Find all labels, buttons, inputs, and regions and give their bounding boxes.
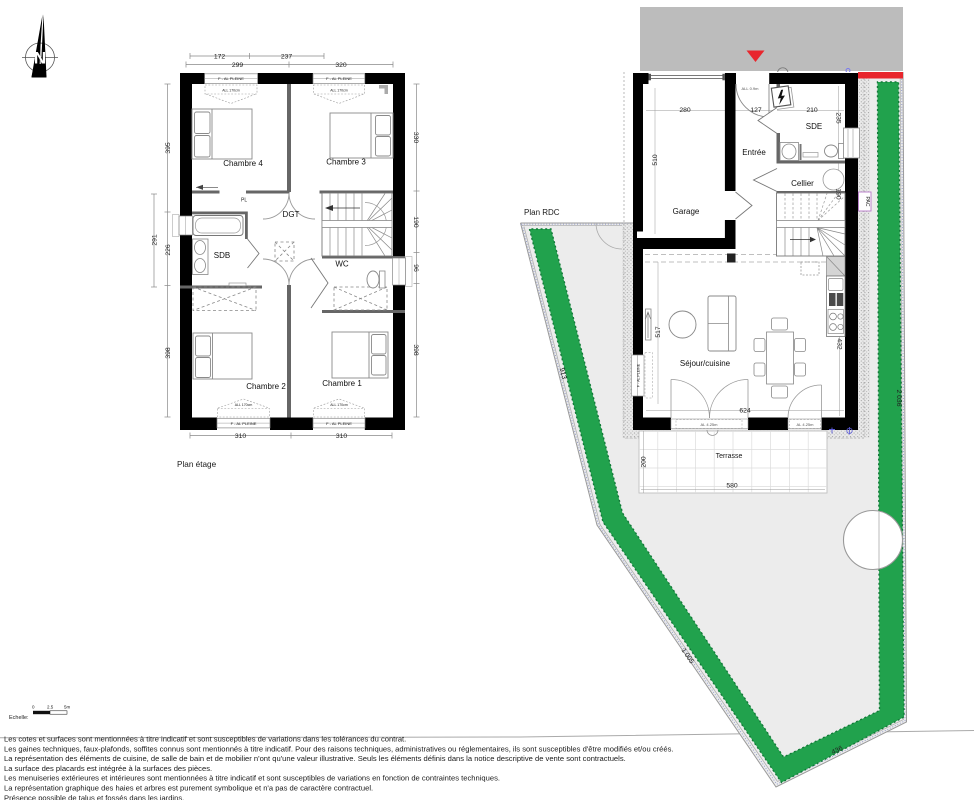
svg-text:2.5: 2.5 [47, 705, 54, 710]
svg-text:2 036: 2 036 [895, 389, 902, 406]
svg-text:N: N [34, 49, 46, 68]
svg-text:Plan RDC: Plan RDC [524, 208, 560, 217]
svg-text:AL 4.25m: AL 4.25m [701, 422, 719, 427]
svg-text:398: 398 [412, 344, 419, 356]
svg-text:280: 280 [679, 107, 691, 114]
svg-text:226: 226 [165, 244, 172, 256]
svg-text:127: 127 [750, 107, 762, 114]
svg-text:330: 330 [412, 132, 419, 144]
svg-text:Présence possible de talus et: Présence possible de talus et fossés dan… [4, 793, 184, 800]
svg-text:F - AL PLEINE: F - AL PLEINE [326, 76, 352, 81]
svg-text:310: 310 [336, 433, 348, 440]
svg-text:ALL 0.9m: ALL 0.9m [742, 86, 760, 91]
svg-text:172: 172 [214, 53, 226, 60]
svg-text:Chambre 1: Chambre 1 [322, 379, 362, 388]
svg-text:Entrée: Entrée [742, 148, 766, 157]
svg-text:La représentation des éléments: La représentation des éléments de cuisin… [4, 754, 626, 763]
svg-text:310: 310 [235, 433, 247, 440]
svg-text:580: 580 [726, 483, 738, 490]
svg-text:Les gaines techniques, faux-pl: Les gaines techniques, faux-plafonds, so… [4, 744, 674, 753]
svg-text:Terrasse: Terrasse [716, 453, 743, 460]
svg-text:F - AL PLEINE: F - AL PLEINE [231, 421, 257, 426]
svg-text:190: 190 [412, 216, 419, 228]
svg-text:190: 190 [834, 188, 841, 200]
svg-text:Plan étage: Plan étage [177, 460, 217, 469]
svg-text:ALL 170cm: ALL 170cm [330, 403, 348, 407]
svg-text:Séjour/cuisine: Séjour/cuisine [680, 359, 731, 368]
svg-text:Les menuiseries extérieures et: Les menuiseries extérieures et intérieur… [4, 774, 500, 783]
svg-text:Garage: Garage [673, 207, 700, 216]
svg-text:F - AL PLEINE: F - AL PLEINE [326, 421, 352, 426]
svg-text:F - AL PLEINE: F - AL PLEINE [218, 76, 244, 81]
svg-text:624: 624 [739, 408, 751, 415]
svg-text:96: 96 [412, 264, 419, 272]
svg-text:Echelle:: Echelle: [9, 715, 29, 721]
svg-text:PAC: PAC [864, 197, 870, 207]
svg-text:WC: WC [335, 260, 349, 269]
svg-text:235: 235 [834, 112, 841, 124]
svg-text:ALL 170cm: ALL 170cm [330, 89, 348, 93]
svg-text:432: 432 [835, 338, 842, 350]
svg-text:AL 4.25m: AL 4.25m [797, 422, 815, 427]
svg-text:320: 320 [335, 62, 347, 69]
svg-text:La représentation graphique de: La représentation graphique des haies et… [4, 784, 373, 793]
svg-text:Chambre 4: Chambre 4 [223, 159, 263, 168]
svg-text:Chambre 2: Chambre 2 [246, 382, 286, 391]
svg-text:Cellier: Cellier [791, 179, 814, 188]
svg-text:La surface des placards est in: La surface des placards est intégrée à l… [4, 764, 212, 773]
svg-text:210: 210 [806, 107, 818, 114]
svg-text:291: 291 [151, 234, 158, 246]
svg-text:395: 395 [165, 142, 172, 154]
svg-text:ALL 170cm: ALL 170cm [235, 403, 253, 407]
svg-text:SDE: SDE [806, 122, 822, 131]
svg-text:237: 237 [281, 53, 293, 60]
svg-text:Les cotes et surfaces sont men: Les cotes et surfaces sont mentionnées à… [4, 735, 406, 744]
svg-text:ALL 170cm: ALL 170cm [222, 89, 240, 93]
svg-text:517: 517 [655, 326, 662, 338]
svg-text:DGT: DGT [283, 210, 300, 219]
svg-text:Chambre 3: Chambre 3 [326, 158, 366, 167]
svg-text:200: 200 [641, 456, 648, 468]
svg-text:PL: PL [241, 198, 247, 204]
svg-text:5m: 5m [64, 705, 71, 710]
svg-text:510: 510 [652, 154, 659, 166]
svg-text:F - AL PLEINE: F - AL PLEINE [637, 363, 641, 387]
svg-text:299: 299 [232, 62, 244, 69]
svg-text:SDB: SDB [214, 251, 230, 260]
svg-text:398: 398 [165, 347, 172, 359]
